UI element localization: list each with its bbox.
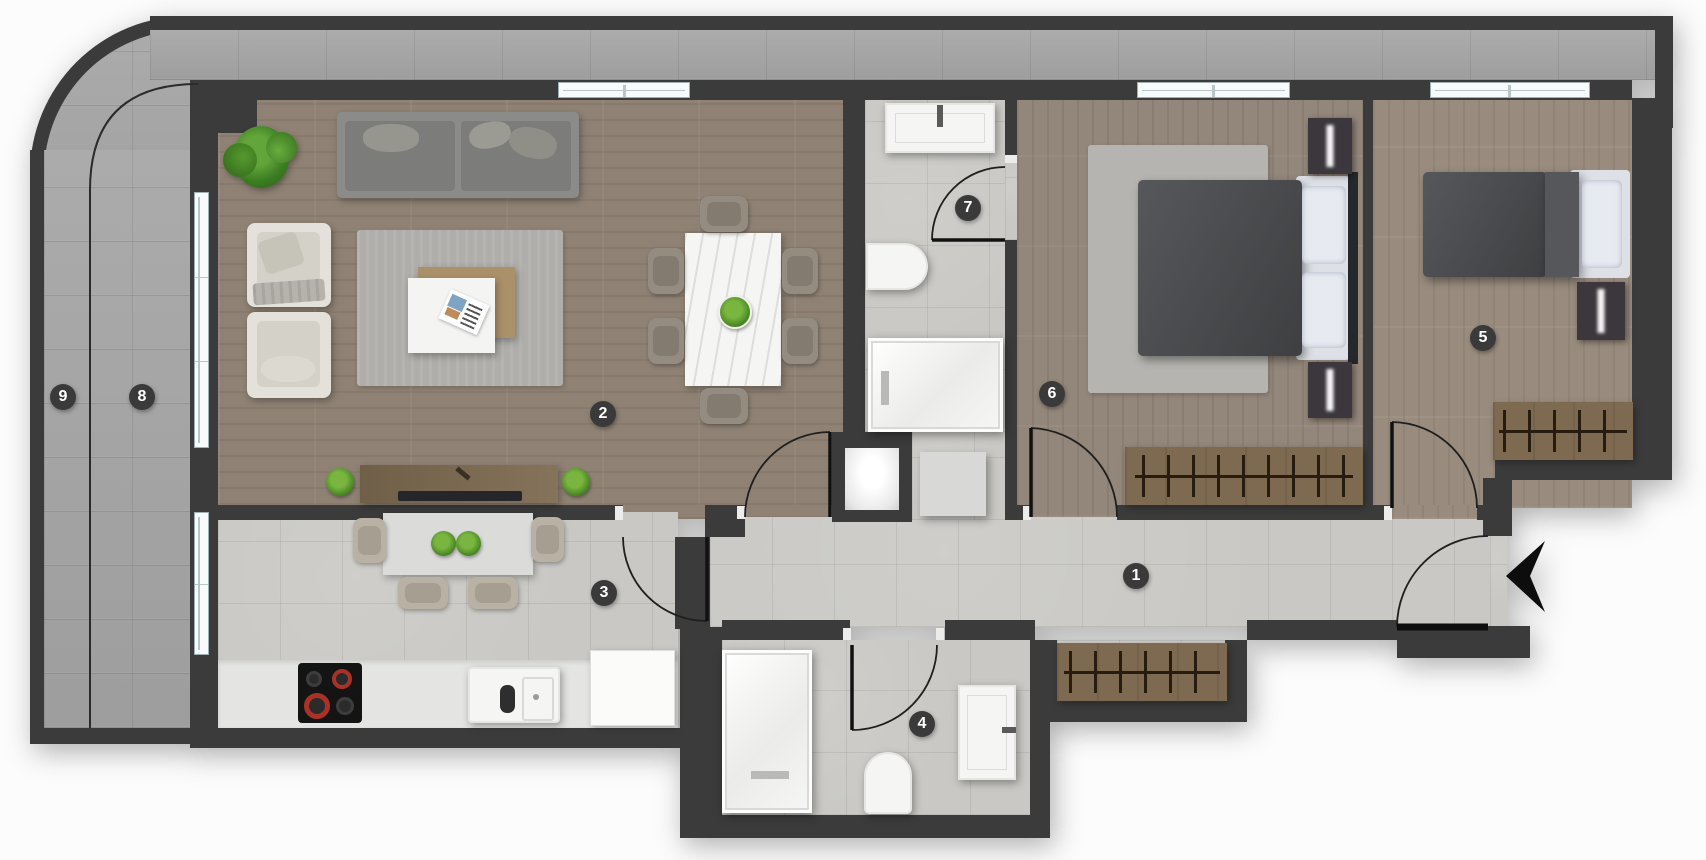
wall-living-bath7 — [843, 100, 865, 432]
wall-south-e — [1117, 505, 1392, 520]
bath7-sink — [885, 103, 995, 153]
kitchen-chair — [531, 517, 564, 562]
outer-wall-left — [30, 150, 44, 744]
remote — [455, 466, 470, 480]
dining-chair — [782, 318, 818, 364]
jamb — [1005, 155, 1017, 163]
bed5-pillow — [1582, 180, 1622, 268]
wall-entry-corner — [1397, 626, 1530, 658]
wall-bath7-bed6-lower — [1005, 240, 1017, 520]
bedroom-middle-wardrobe — [1125, 447, 1363, 505]
hallway-floor — [710, 517, 1490, 627]
kitchen-fridge — [590, 650, 675, 726]
jamb — [843, 628, 851, 640]
faucet — [500, 685, 515, 713]
plant-console-right — [562, 468, 590, 496]
faucet — [1002, 727, 1016, 733]
wall-bed6-bed5 — [1363, 100, 1373, 517]
jamb — [615, 506, 623, 520]
plant-console-left — [326, 468, 354, 496]
wall-hall-bottom-b — [945, 620, 1035, 640]
wall-bath4-bottom — [680, 815, 1050, 838]
burner — [304, 693, 330, 719]
bed6-pillow-2 — [1302, 272, 1346, 348]
bed5-nightstand — [1577, 282, 1625, 340]
bath7-shower — [868, 338, 1003, 432]
kitchen-chair — [398, 577, 448, 609]
armchair-1 — [247, 223, 331, 307]
kitchen-table — [383, 513, 533, 575]
bed6-pillow-1 — [1302, 186, 1346, 264]
room-label-bathroom-upper: 7 — [955, 195, 981, 221]
magazine — [438, 289, 489, 335]
dining-chair — [648, 248, 684, 294]
bed6-nightstand-bottom — [1308, 362, 1352, 418]
jamb — [1384, 506, 1392, 520]
tv-console — [360, 465, 558, 503]
bath7-toilet — [866, 243, 928, 290]
drain — [881, 371, 889, 405]
wall-bed5-bottom — [1495, 460, 1672, 480]
room-label-balcony-outer: 9 — [50, 384, 76, 410]
dining-centerpiece-plant — [718, 295, 752, 329]
dining-chair — [782, 248, 818, 294]
wall-kitchen-right — [675, 537, 710, 629]
table-bowl-2 — [456, 531, 481, 556]
living-room-top-window — [558, 82, 690, 98]
room-label-kitchen: 3 — [591, 580, 617, 606]
bed5-duvet-fold — [1545, 172, 1579, 277]
room-label-bedroom-right: 5 — [1470, 325, 1496, 351]
burner — [306, 671, 322, 687]
room-label-living-room: 2 — [590, 401, 616, 427]
bedroom-middle-window — [1137, 82, 1290, 98]
wall-top-inner — [195, 80, 1632, 100]
room-label-balcony-inner: 8 — [129, 384, 155, 410]
sofa — [337, 112, 579, 198]
balcony-wall-bottom — [30, 728, 195, 744]
bed5-duvet — [1423, 172, 1547, 277]
dining-chair — [700, 196, 748, 232]
wall-niche-right — [1225, 640, 1247, 722]
dining-table — [685, 233, 781, 386]
hall-cabinet — [920, 452, 986, 516]
bathroom-upper-threshold — [1005, 163, 1017, 240]
kitchen-sink — [468, 667, 560, 723]
balcony-floor — [44, 150, 195, 728]
burner — [336, 697, 354, 715]
entrance-arrow-icon — [1506, 541, 1545, 612]
hall-closet — [1057, 643, 1227, 701]
wall-entry-upper — [1483, 478, 1512, 536]
bed6-nightstand-top — [1308, 118, 1352, 174]
table-bowl-1 — [431, 531, 456, 556]
entrance-threshold — [1490, 527, 1507, 627]
apartment-plan: 123456789 — [0, 0, 1706, 860]
kitchen-chair — [353, 518, 386, 563]
plant-living-room — [233, 126, 289, 188]
faucet — [937, 105, 943, 127]
drain — [751, 771, 789, 779]
bedroom-right-wardrobe — [1493, 402, 1633, 460]
room-label-bathroom-lower: 4 — [909, 711, 935, 737]
wall-kitchen-bottom — [190, 728, 710, 748]
outer-wall-top — [150, 16, 1672, 30]
wall-hall-bottom-c — [1247, 620, 1397, 640]
dining-chair — [700, 388, 748, 424]
wall-bath4-left — [680, 627, 722, 838]
bath4-shower — [722, 650, 812, 813]
bed6-duvet — [1138, 180, 1302, 356]
bath4-sink — [958, 685, 1016, 780]
bedroom-right-threshold — [1392, 505, 1477, 519]
room-label-hallway: 1 — [1123, 563, 1149, 589]
outer-wall-right — [1632, 98, 1672, 478]
bath4-toilet — [864, 752, 912, 814]
wall-hall-bottom-a — [722, 620, 850, 640]
living-room-side-window — [194, 192, 209, 448]
tv — [398, 491, 522, 501]
bed6-headboard — [1348, 172, 1358, 364]
jamb — [936, 628, 944, 640]
wall-bath7-bed6-upper — [1005, 100, 1017, 163]
coffee-table-white — [408, 278, 495, 353]
terrace-floor — [150, 30, 1655, 80]
jamb — [737, 506, 745, 519]
bedroom-right-window — [1430, 82, 1590, 98]
burner — [332, 669, 352, 689]
armchair-2 — [247, 312, 331, 398]
shaft-window — [845, 448, 899, 510]
floor-plan-canvas: 123456789 — [0, 0, 1706, 860]
wall-niche-bottom — [1035, 700, 1247, 722]
dining-chair — [648, 318, 684, 364]
kitchen-chair — [468, 577, 518, 609]
kitchen-side-window — [194, 512, 209, 655]
room-label-bedroom-middle: 6 — [1039, 381, 1065, 407]
jamb — [1023, 506, 1031, 520]
cooktop — [298, 663, 362, 723]
